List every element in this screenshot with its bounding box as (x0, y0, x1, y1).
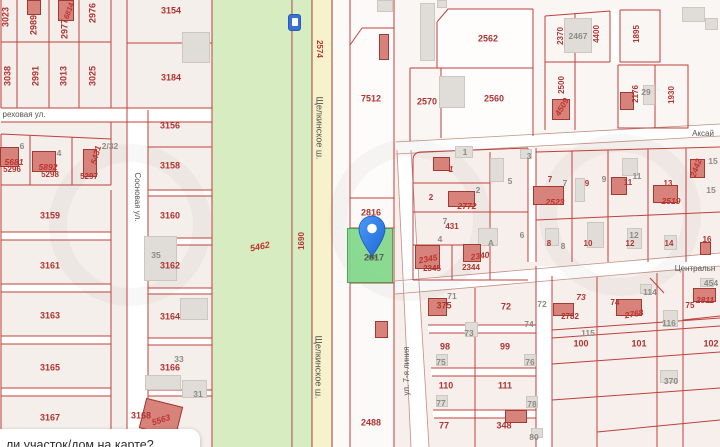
building-footprint-red (27, 0, 41, 15)
parcel-label: 5 (508, 177, 513, 186)
parcel-label: 3158 (160, 162, 180, 171)
parcel-label: 3013 (60, 66, 69, 86)
parcel-label: 4400 (593, 25, 601, 43)
parcel-label: 2811 (696, 296, 714, 305)
parcel-label: 15 (706, 186, 715, 195)
building-footprint-gray (182, 32, 210, 63)
parcel-label: 3184 (161, 74, 181, 83)
parcel-label: 29 (641, 88, 650, 97)
parcel-label: 72 (537, 300, 546, 309)
cadastral-map[interactable]: 302329896814297729763038299130133025рехо… (0, 0, 720, 447)
parcel-label: 3156 (160, 122, 180, 131)
parcel-label: 2989 (30, 15, 39, 35)
parcel-label: 12 (629, 231, 638, 240)
parcel-label: 16 (703, 236, 712, 244)
building-footprint-gray (439, 76, 465, 108)
street-label-sosnovaya: Сосновая ул. (133, 173, 141, 222)
parcel-label: 7 (563, 179, 568, 188)
parcel-label: 3023 (2, 7, 11, 27)
parcel-label: 6 (520, 231, 525, 240)
building-footprint-gray (437, 0, 447, 8)
parcel-label: 6 (20, 142, 25, 151)
parcel-label: 3164 (160, 313, 180, 322)
parcel-label: 3025 (89, 66, 98, 86)
parcel-label: 1690 (298, 232, 306, 250)
parcel-label: 9 (585, 180, 589, 188)
location-pin-icon[interactable] (357, 214, 387, 265)
parcel-label: 14 (665, 240, 674, 248)
road-label-shchelkinskoe-bottom: Щелкинское ш. (314, 335, 323, 398)
parcel-label: 3159 (40, 212, 60, 221)
map-prompt-text: ли участок/дом на карте? (6, 438, 154, 447)
parcel-label: 2467 (569, 32, 588, 41)
parcel-label: А (488, 239, 494, 248)
parcel-label: 2344 (462, 264, 480, 272)
building-footprint-red (375, 321, 388, 338)
parcel-label: 99 (500, 343, 510, 352)
parcel-label: 4 (438, 235, 443, 244)
parcel-label: 114 (643, 288, 657, 297)
parcel-label: 101 (631, 340, 646, 349)
parcel-label: 5297 (80, 173, 98, 181)
parcel-label: 98 (440, 343, 450, 352)
parcel-label: 15 (708, 157, 717, 166)
parcel-label: 2570 (417, 98, 437, 107)
parcel-label: 3165 (40, 364, 60, 373)
parcel-label: 3038 (4, 66, 13, 86)
parcel-label: 348 (496, 422, 511, 431)
parcel-label: 2523 (546, 198, 565, 207)
parcel-label: 2782 (561, 313, 579, 321)
parcel-label: 110 (439, 382, 454, 391)
building-footprint-gray (377, 0, 393, 12)
parcel-label: 78 (527, 400, 536, 409)
parcel-label: 2345 (423, 265, 441, 273)
parcel-label: 11 (633, 172, 642, 181)
parcel-label: 2574 (315, 40, 323, 58)
parcel-label: 370 (664, 377, 678, 386)
parcel-label: 1 (449, 165, 454, 174)
parcel-label: 102 (703, 340, 718, 349)
street-label-orekhovaya: реховая ул. (3, 111, 46, 119)
parcel-label: 9 (602, 175, 607, 184)
parcel-label: 8 (547, 240, 551, 248)
parcel-label: 2176 (632, 85, 640, 103)
parcel-label: 3161 (40, 262, 60, 271)
parcel-label: 31 (193, 390, 202, 399)
parcel-label: 74 (524, 320, 533, 329)
parcel-label: 2 (429, 194, 433, 202)
map-prompt-tooltip[interactable]: ли участок/дом на карте? (0, 429, 200, 447)
parcel-label: 2976 (89, 3, 98, 23)
parcel-label: 5296 (3, 166, 21, 174)
parcel-label: 3167 (40, 414, 60, 423)
parcel-label: 76 (525, 358, 534, 367)
parcel-label: 1895 (633, 25, 641, 43)
parcel-label: 2/32 (102, 142, 119, 151)
parcel-label: 2370 (557, 27, 565, 45)
parcel-label: 115 (581, 329, 595, 338)
parcel-label: 10 (584, 240, 593, 248)
parcel-label: 80 (529, 433, 538, 442)
road-label-shchelkinskoe-top: Щелкинское ш. (315, 96, 324, 159)
parcel-label: 11 (624, 179, 632, 187)
parcel-label: 73 (464, 329, 473, 338)
parcel-label: 4 (57, 149, 62, 158)
parcel-label: 2977 (61, 19, 70, 39)
parcel-label: 116 (662, 319, 676, 328)
parcel-label: 72 (501, 303, 511, 312)
parcel-label: 5298 (41, 171, 59, 179)
green-field (212, 0, 292, 447)
parcel-label: 74 (611, 299, 620, 307)
parcel-label: 3162 (160, 262, 180, 271)
parcel-label: 2 (476, 186, 481, 195)
building-footprint-red (379, 34, 389, 60)
parcel-label: 8 (561, 242, 566, 251)
parcel-label: 3160 (160, 212, 180, 221)
parcel-label: 77 (436, 399, 445, 408)
parcel-label: 3163 (40, 312, 60, 321)
parcel-label: 111 (498, 382, 512, 391)
parcel-label: 75 (686, 302, 695, 310)
building-footprint-gray (705, 18, 718, 30)
parcel-label: 77 (439, 422, 449, 431)
parcel-label: 2991 (32, 66, 41, 86)
building-footprint-gray (575, 178, 585, 202)
parcel-label: 454 (704, 279, 718, 288)
parcel-label: 35 (151, 251, 160, 260)
parcel-label: 71 (447, 292, 456, 301)
parcel-label: 2562 (478, 35, 498, 44)
parcel-label: 2500 (558, 76, 566, 94)
parcel-label: 375 (436, 302, 451, 311)
parcel-label: 2488 (361, 419, 381, 428)
parcel-label: 1 (463, 148, 468, 157)
parcel-label: 7512 (361, 95, 381, 104)
parcel-label: 3166 (160, 364, 180, 373)
building-footprint-gray (490, 158, 504, 182)
parcel-label: 75 (436, 358, 445, 367)
bus-stop-sign-icon (288, 14, 301, 31)
building-footprint-gray (145, 375, 181, 390)
building-footprint-gray (420, 3, 435, 61)
street-label-aksay: Аксай (692, 130, 714, 138)
parcel-label: 13 (664, 180, 673, 188)
street-label-central: Центральн (675, 265, 716, 273)
parcel-label: 1930 (668, 86, 676, 104)
parcel-label: 100 (573, 340, 588, 349)
parcel-label: 2519 (662, 197, 681, 206)
building-footprint-red (433, 157, 450, 171)
parcel-label: 73 (576, 293, 585, 302)
parcel-label: 3 (527, 152, 532, 161)
parcel-label: 2560 (484, 95, 504, 104)
parcel-label: 431 (445, 223, 458, 231)
parcel-label: 3168 (131, 412, 151, 421)
street-label-7line: ул. 7-я линия (403, 347, 411, 396)
parcel-label: 3154 (161, 7, 181, 16)
parcel-label: 2772 (458, 202, 477, 211)
building-footprint-gray (180, 298, 208, 320)
parcel-label: 12 (626, 240, 635, 248)
building-footprint-gray (682, 7, 705, 22)
parcel-label: 7 (548, 176, 552, 184)
